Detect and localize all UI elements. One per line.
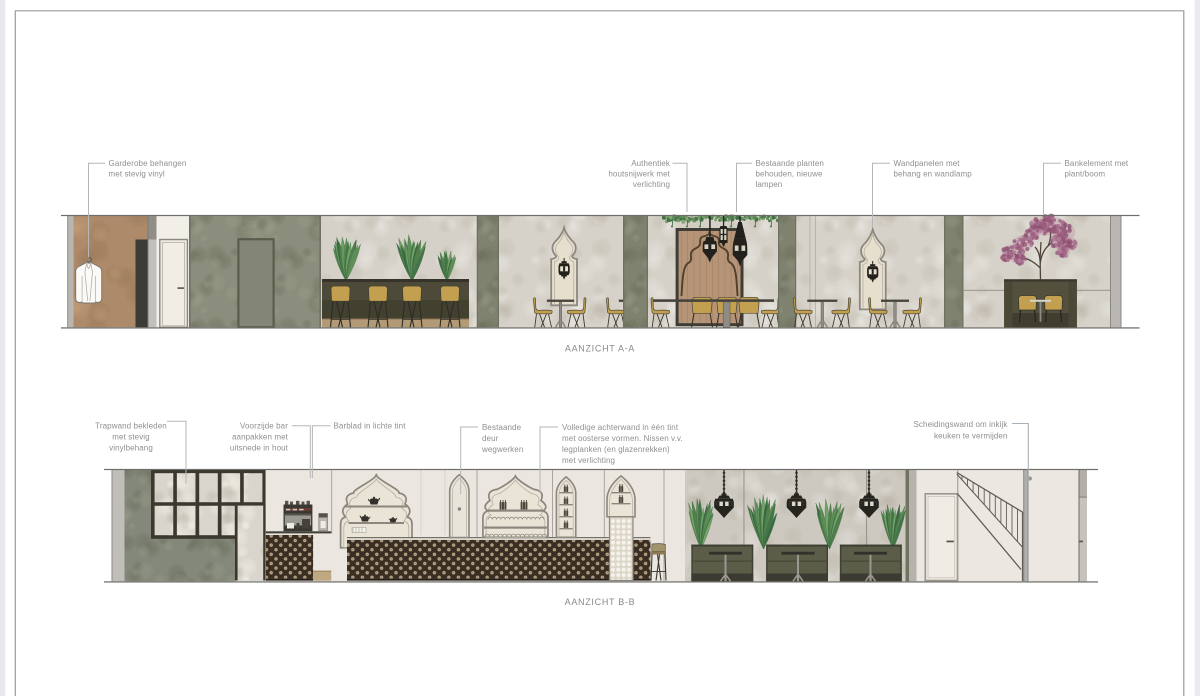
svg-text:vinylbehang: vinylbehang — [109, 444, 153, 453]
svg-text:Scheidingswand om inkijk: Scheidingswand om inkijk — [913, 420, 1008, 429]
svg-text:Bankelement met: Bankelement met — [1065, 159, 1129, 168]
svg-text:Trapwand bekleden: Trapwand bekleden — [95, 422, 167, 431]
svg-text:legplanken (en glazenrekken): legplanken (en glazenrekken) — [562, 445, 670, 454]
svg-text:aanpakken met: aanpakken met — [232, 433, 289, 442]
svg-text:wegwerken: wegwerken — [481, 445, 523, 454]
svg-text:behang en wandlamp: behang en wandlamp — [894, 170, 973, 179]
svg-text:Bestaande: Bestaande — [482, 423, 522, 432]
svg-text:plant/boom: plant/boom — [1065, 170, 1106, 179]
svg-text:Wandpanelen met: Wandpanelen met — [894, 159, 961, 168]
svg-text:Bestaande planten: Bestaande planten — [756, 159, 824, 168]
svg-text:AANZICHT B-B: AANZICHT B-B — [565, 597, 636, 607]
svg-text:Volledige achterwand in één ti: Volledige achterwand in één tint — [562, 423, 679, 432]
svg-text:Garderobe behangen: Garderobe behangen — [109, 159, 187, 168]
svg-text:keuken te vermijden: keuken te vermijden — [934, 431, 1008, 440]
svg-text:uitsnede in hout: uitsnede in hout — [230, 444, 289, 453]
svg-text:behouden, nieuwe: behouden, nieuwe — [756, 170, 823, 179]
svg-text:met verlichting: met verlichting — [562, 456, 615, 465]
svg-text:met oosterse vormen. Nissen v.: met oosterse vormen. Nissen v.v. — [562, 434, 683, 443]
svg-text:Voorzijde bar: Voorzijde bar — [240, 422, 288, 431]
svg-text:lampen: lampen — [756, 180, 783, 189]
svg-text:AANZICHT A-A: AANZICHT A-A — [565, 344, 635, 354]
svg-text:Barblad in lichte tint: Barblad in lichte tint — [334, 422, 407, 431]
svg-text:verlichting: verlichting — [633, 180, 670, 189]
svg-text:Authentiek: Authentiek — [631, 159, 671, 168]
svg-text:deur: deur — [482, 434, 499, 443]
svg-text:houtsnijwerk met: houtsnijwerk met — [608, 170, 670, 179]
svg-text:met stevig vinyl: met stevig vinyl — [109, 170, 165, 179]
svg-text:met stevig: met stevig — [112, 433, 149, 442]
